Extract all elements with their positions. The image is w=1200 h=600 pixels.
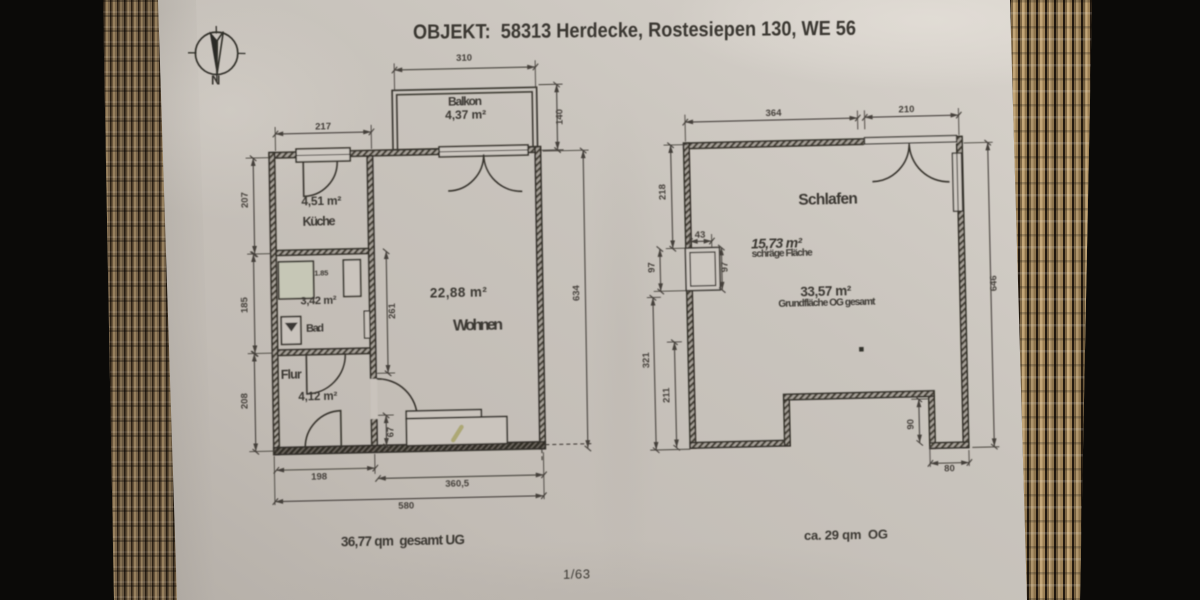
- svg-text:Küche: Küche: [302, 214, 335, 229]
- svg-text:185: 185: [239, 296, 250, 313]
- svg-text:261: 261: [387, 302, 398, 319]
- svg-text:211: 211: [661, 387, 672, 403]
- svg-text:36,77 qm gesamt UG: 36,77 qm gesamt UG: [341, 532, 465, 549]
- svg-text:Flur: Flur: [281, 367, 302, 381]
- svg-text:210: 210: [898, 104, 914, 115]
- svg-text:360,5: 360,5: [445, 478, 470, 490]
- svg-text:217: 217: [315, 121, 331, 132]
- svg-text:1.85: 1.85: [314, 268, 328, 277]
- svg-text:310: 310: [456, 53, 472, 64]
- svg-text:Schlafen: Schlafen: [798, 191, 858, 209]
- svg-text:580: 580: [398, 500, 414, 511]
- svg-text:97: 97: [720, 262, 731, 273]
- svg-text:97: 97: [647, 262, 658, 273]
- svg-text:3,42 m²: 3,42 m²: [300, 295, 337, 308]
- svg-text:ca. 29 qm OG: ca. 29 qm OG: [804, 527, 888, 544]
- svg-text:schräge Fläche: schräge Fläche: [752, 248, 814, 260]
- svg-text:Balkon: Balkon: [448, 94, 482, 109]
- svg-text:Grundfläche OG gesamt: Grundfläche OG gesamt: [778, 296, 876, 309]
- svg-text:90: 90: [905, 419, 916, 430]
- svg-text:646: 646: [988, 275, 999, 291]
- svg-text:1/63: 1/63: [563, 566, 590, 581]
- svg-text:207: 207: [239, 192, 250, 208]
- svg-text:Bad: Bad: [306, 322, 324, 334]
- svg-text:43: 43: [695, 230, 706, 241]
- svg-text:208: 208: [239, 393, 250, 409]
- svg-text:22,88 m²: 22,88 m²: [430, 284, 488, 300]
- svg-text:4,12 m²: 4,12 m²: [298, 391, 337, 404]
- svg-text:80: 80: [944, 463, 955, 474]
- svg-text:321: 321: [641, 352, 652, 369]
- svg-text:198: 198: [311, 471, 327, 482]
- svg-text:4,37 m²: 4,37 m²: [445, 108, 486, 123]
- svg-text:4,51 m²: 4,51 m²: [301, 193, 341, 208]
- svg-text:364: 364: [765, 108, 782, 119]
- svg-text:OBJEKT: 58313 Herdecke, Roste: OBJEKT: 58313 Herdecke, Rostesiepen 130,…: [413, 17, 856, 44]
- svg-text:634: 634: [571, 284, 582, 301]
- svg-text:Wohnen: Wohnen: [453, 317, 503, 335]
- svg-text:67: 67: [385, 427, 396, 438]
- svg-text:N: N: [211, 72, 220, 87]
- svg-text:218: 218: [657, 184, 668, 200]
- svg-text:140: 140: [554, 109, 565, 125]
